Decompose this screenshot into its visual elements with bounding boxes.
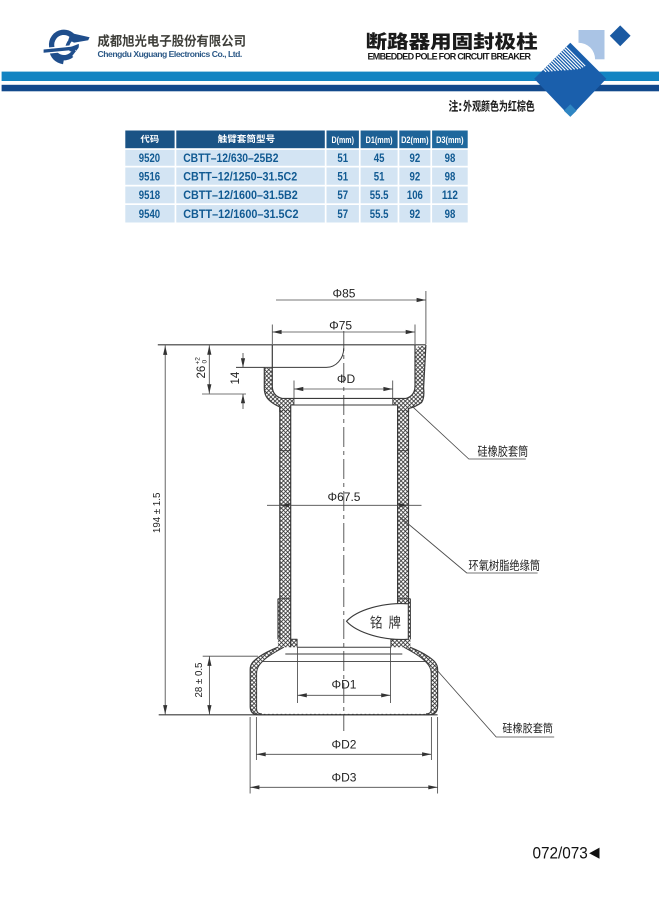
svg-text:26: 26 [196, 366, 208, 379]
svg-text:+2: +2 [195, 357, 202, 365]
svg-text:57: 57 [337, 190, 348, 202]
svg-text:51: 51 [374, 171, 385, 183]
svg-text:92: 92 [410, 153, 421, 165]
svg-text:ΦD2: ΦD2 [332, 737, 357, 751]
svg-text:Chengdu Xuguang Electronics Co: Chengdu Xuguang Electronics Co., Ltd. [98, 49, 243, 59]
svg-text:106: 106 [407, 190, 423, 202]
svg-text:9516: 9516 [139, 171, 160, 183]
svg-text:0: 0 [202, 360, 209, 364]
svg-text:CBTT–12/1600–31.5B2: CBTT–12/1600–31.5B2 [183, 190, 298, 202]
svg-text:9520: 9520 [139, 153, 160, 165]
svg-text:Φ67.5: Φ67.5 [328, 490, 361, 504]
svg-text:D1(mm): D1(mm) [366, 135, 393, 146]
svg-text:98: 98 [445, 171, 456, 183]
svg-text:ΦD: ΦD [337, 372, 356, 386]
svg-text:98: 98 [445, 209, 456, 221]
svg-text:ΦD1: ΦD1 [332, 678, 357, 692]
svg-text:51: 51 [337, 171, 348, 183]
svg-text:92: 92 [410, 209, 421, 221]
svg-text:112: 112 [442, 190, 458, 202]
svg-text:92: 92 [410, 171, 421, 183]
svg-text:CBTT–12/1250–31.5C2: CBTT–12/1250–31.5C2 [183, 171, 297, 183]
svg-text:ΦD3: ΦD3 [332, 770, 357, 784]
svg-text:9518: 9518 [139, 190, 161, 202]
svg-text:45: 45 [374, 153, 385, 165]
svg-text:CBTT–12/630–25B2: CBTT–12/630–25B2 [183, 153, 278, 165]
svg-text:55.5: 55.5 [370, 190, 389, 202]
svg-text:D(mm): D(mm) [332, 135, 355, 146]
svg-text:D3(mm): D3(mm) [436, 135, 464, 146]
svg-text:EMBEDDED POLE FOR CIRCUIT BREA: EMBEDDED POLE FOR CIRCUIT BREAKER [368, 52, 532, 62]
svg-text:194 ± 1.5: 194 ± 1.5 [152, 493, 163, 533]
svg-text:98: 98 [445, 153, 456, 165]
svg-text:9540: 9540 [139, 209, 160, 221]
svg-text:55.5: 55.5 [370, 209, 389, 221]
svg-text:D2(mm): D2(mm) [401, 135, 429, 146]
svg-text:Φ75: Φ75 [329, 318, 352, 332]
svg-text:Φ85: Φ85 [333, 286, 356, 300]
svg-text:51: 51 [337, 153, 348, 165]
svg-text:14: 14 [230, 371, 242, 384]
svg-text:072/073: 072/073 [533, 844, 588, 862]
svg-text:57: 57 [337, 209, 348, 221]
svg-text:CBTT–12/1600–31.5C2: CBTT–12/1600–31.5C2 [183, 209, 298, 221]
svg-text:28 ± 0.5: 28 ± 0.5 [194, 663, 205, 698]
